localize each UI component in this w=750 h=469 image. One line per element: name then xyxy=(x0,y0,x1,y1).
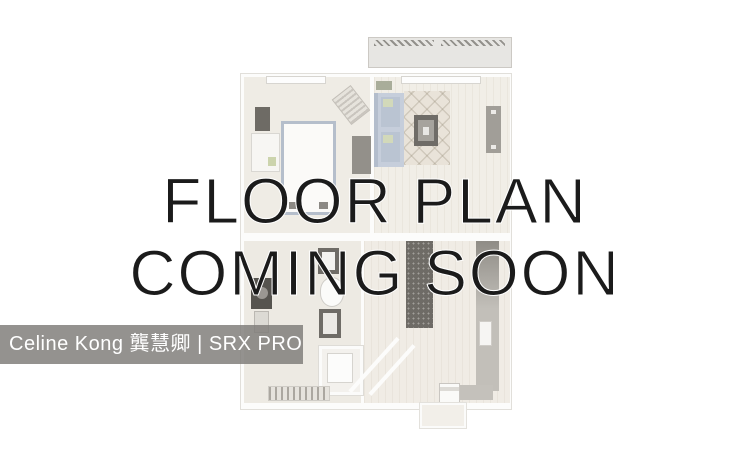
kitchen-appliance xyxy=(439,383,460,403)
bedroom-window xyxy=(266,76,326,84)
bathroom-vanity xyxy=(319,309,341,338)
overlay-line1: FLOOR PLAN xyxy=(0,165,750,237)
sofa-pillow xyxy=(383,99,393,107)
nightstand xyxy=(255,107,270,131)
balcony-railing xyxy=(374,40,434,46)
plant xyxy=(376,81,392,90)
overlay-line2: COMING SOON xyxy=(0,237,750,309)
living-room-window xyxy=(401,76,481,84)
chevron-rug xyxy=(332,85,371,125)
wardrobe-clothes xyxy=(268,386,330,401)
tv-console xyxy=(486,106,501,153)
entry-foyer xyxy=(420,403,466,428)
closet-shelf xyxy=(327,353,353,383)
sofa xyxy=(374,93,404,167)
listing-image: FLOOR PLAN COMING SOON Celine Kong 龔慧卿 |… xyxy=(0,0,750,469)
kitchen-sink xyxy=(479,321,492,346)
coming-soon-overlay: FLOOR PLAN COMING SOON xyxy=(0,165,750,309)
agent-watermark-text: Celine Kong 龔慧卿 | SRX PROPERTY xyxy=(9,333,303,355)
door-swing-line xyxy=(368,344,415,396)
agent-watermark-bar: Celine Kong 龔慧卿 | SRX PROPERTY xyxy=(0,325,303,364)
sofa-pillow xyxy=(383,135,393,143)
balcony xyxy=(368,37,512,68)
appliance-handle xyxy=(440,387,459,391)
balcony-railing xyxy=(441,40,505,46)
coffee-table-decor xyxy=(423,127,429,135)
coffee-table xyxy=(414,115,438,146)
